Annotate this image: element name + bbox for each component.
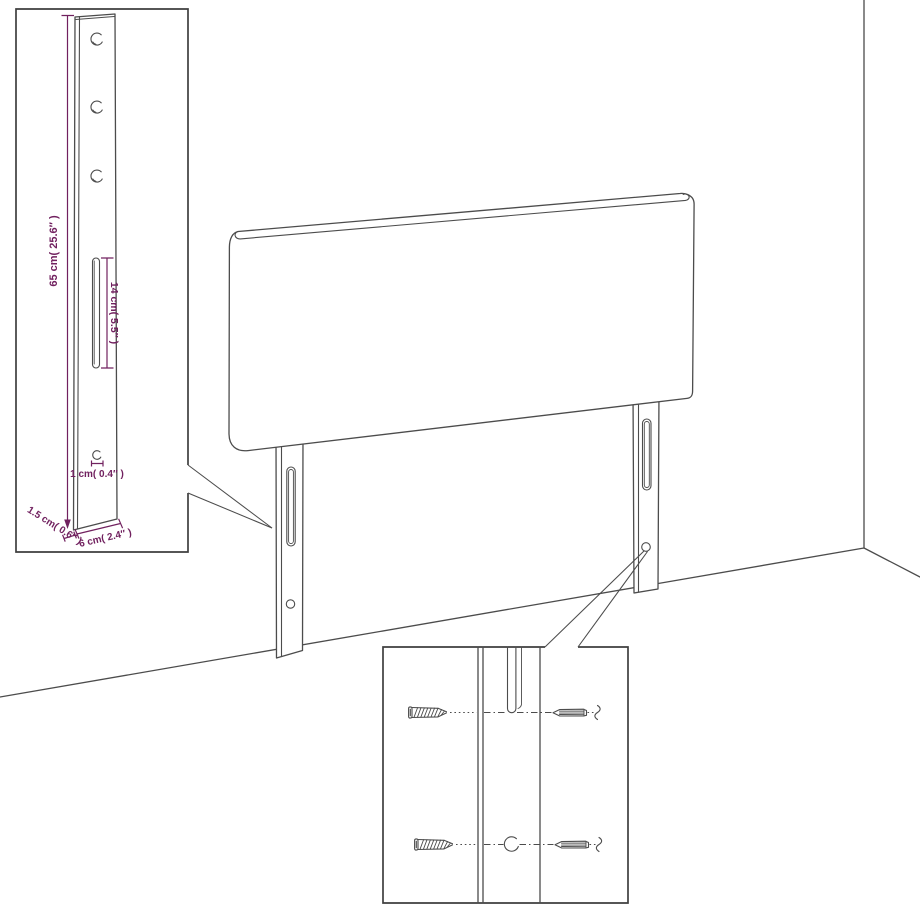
fastener-row-bottom (415, 838, 602, 852)
floor-line-right (864, 548, 920, 577)
callout-leader-left-top (188, 465, 272, 528)
left-leg (276, 436, 303, 658)
callout-leader-left-bottom (188, 493, 272, 528)
leg-side-view (74, 14, 118, 530)
leg-side-view-body (74, 14, 118, 530)
thread-squiggle-icon (595, 706, 600, 720)
mounting-hole-close-up (504, 837, 518, 851)
wall-plug-icon (553, 709, 587, 716)
dimension-label-1cm: 1 cm( 0.4″ ) (70, 469, 124, 480)
left-leg-body (276, 436, 303, 658)
headboard-panel (229, 193, 694, 450)
headboard-dimension-diagram: 65 cm( 25.6″ ) 14 cm( 5.5″ ) 1 cm( 0.4″ … (0, 0, 920, 920)
mounting-detail-callout (383, 551, 648, 904)
right-leg-body (633, 390, 659, 593)
slot-end-close-up (508, 647, 516, 713)
slot-end-inner-line (518, 647, 522, 709)
dimension-label-6cm: 6 cm( 2.4″ ) (78, 527, 133, 550)
right-leg (633, 390, 659, 593)
dimension-line-65cm (62, 16, 75, 523)
dimension-label-14cm: 14 cm( 5.5″ ) (108, 282, 120, 344)
leg-strip-edges (478, 647, 540, 903)
leg-strip-close-up (478, 647, 540, 903)
screw-icon (409, 707, 447, 718)
dimension-label-65cm: 65 cm( 25.6″ ) (48, 215, 60, 287)
diagram-canvas: 65 cm( 25.6″ ) 14 cm( 5.5″ ) 1 cm( 0.4″ … (0, 0, 920, 920)
dimension-leg-height: 65 cm( 25.6″ ) (48, 16, 74, 530)
floor-line-left (0, 548, 864, 697)
callout-leader-bottom-right (578, 552, 648, 648)
thread-squiggle-icon (596, 838, 601, 852)
headboard (229, 193, 694, 450)
screw-icon (415, 839, 453, 850)
wall-plug-icon (555, 841, 589, 848)
callout-box-bottom (383, 647, 628, 903)
callout-leader-bottom-left (545, 551, 645, 648)
fastener-row-top (409, 706, 601, 720)
